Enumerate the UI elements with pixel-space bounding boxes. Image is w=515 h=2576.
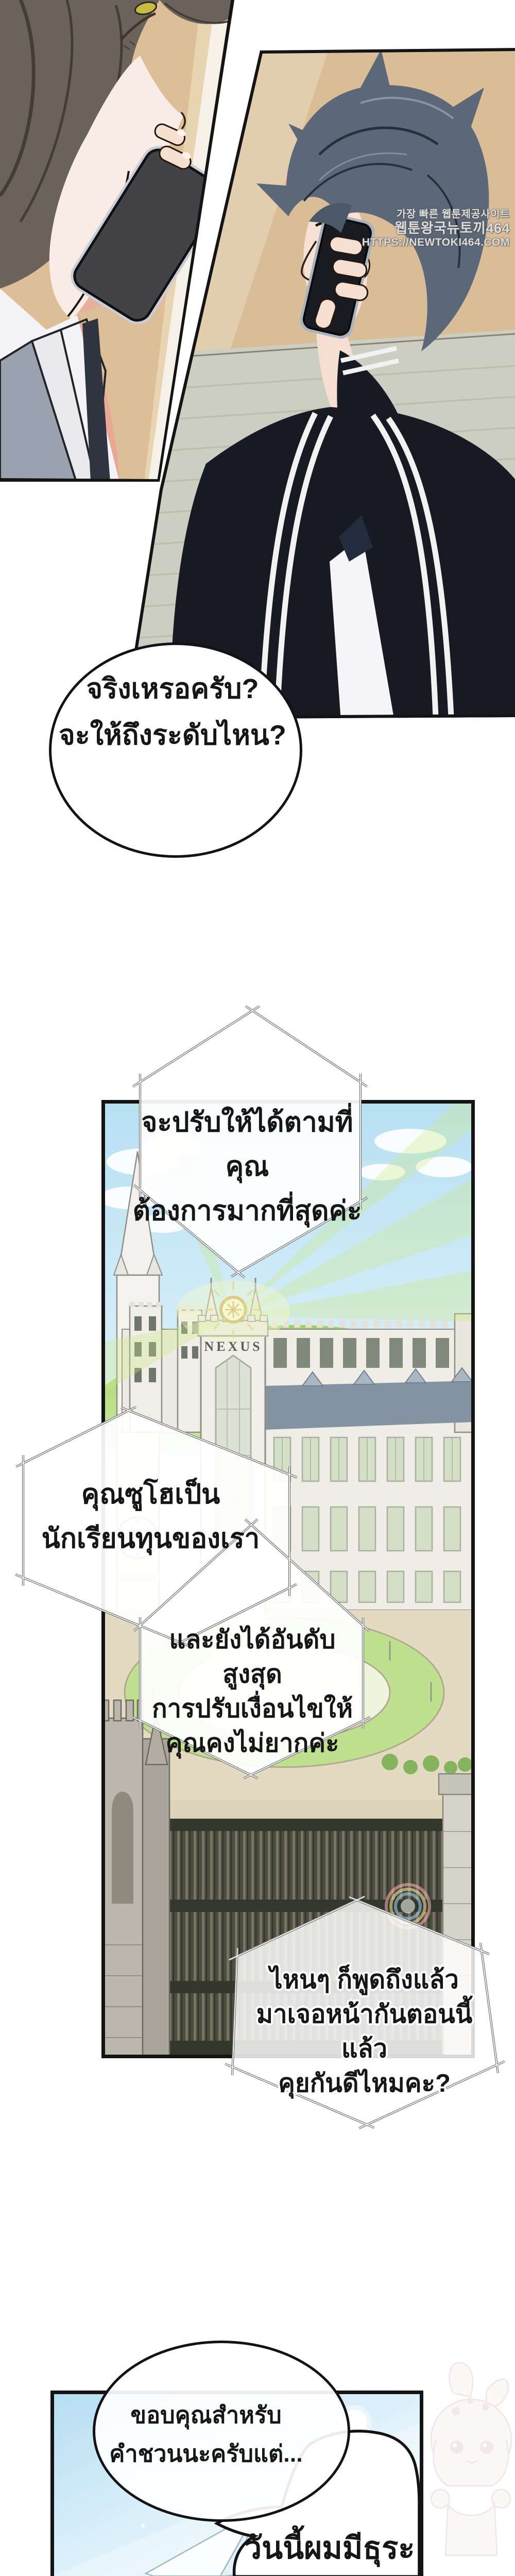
speech-bubble-3-text: คุณซูโฮเป็นนักเรียนทุนของเรา: [28, 1472, 273, 1561]
site-watermark: 가장 빠른 웹툰제공사이트 웹툰왕국뉴토끼464 HTTPS://NEWTOKI…: [355, 209, 510, 249]
speech-bubble-5-text: ไหนๆ ก็พูดถึงแล้วมาเจอหน้ากันตอนนี้แล้ว …: [247, 1963, 482, 2101]
webtoon-page: จริงเหรอครับ? จะให้ถึงระดับไหน?: [0, 0, 515, 2576]
speech-bubble-4-text: และยังได้อันดับสูงสุดการปรับเงื่อนไขให้ …: [142, 1623, 363, 1761]
speech-bubble-7-text: วันนี้ผมมีธุระส่วนตัวน่ะครับ: [221, 2523, 438, 2576]
speech-bubble-2-text: จะปรับให้ได้ตามที่คุณต้องการมากที่สุดค่ะ: [131, 1100, 363, 1233]
speech-bubble-6-text: ขอบคุณสำหรับคำชวนนะครับแต่...: [85, 2396, 327, 2473]
mascot-watermark-icon: [425, 2349, 515, 2576]
speech-bubbles-overlay: [0, 0, 515, 2576]
